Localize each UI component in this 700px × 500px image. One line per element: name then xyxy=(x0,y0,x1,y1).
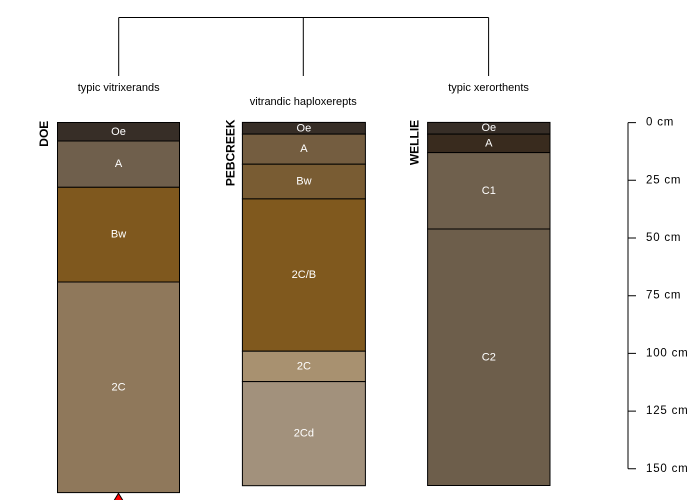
svg-text:2Cd: 2Cd xyxy=(294,428,314,440)
svg-text:WELLIE: WELLIE xyxy=(408,120,422,165)
svg-text:A: A xyxy=(300,143,308,155)
svg-text:Bw: Bw xyxy=(111,229,126,241)
svg-text:typic xerorthents: typic xerorthents xyxy=(448,82,529,94)
svg-text:vitrandic haploxerepts: vitrandic haploxerepts xyxy=(250,96,358,108)
svg-text:2C: 2C xyxy=(111,381,125,393)
svg-text:C1: C1 xyxy=(482,185,496,197)
svg-text:2C/B: 2C/B xyxy=(292,269,316,281)
svg-text:A: A xyxy=(485,137,493,149)
svg-text:C2: C2 xyxy=(482,351,496,363)
svg-text:150 cm: 150 cm xyxy=(646,463,689,475)
svg-text:typic vitrixerands: typic vitrixerands xyxy=(78,82,160,94)
svg-text:100 cm: 100 cm xyxy=(646,347,689,359)
svg-text:75 cm: 75 cm xyxy=(646,290,681,302)
svg-text:Oe: Oe xyxy=(297,122,312,134)
svg-text:25 cm: 25 cm xyxy=(646,174,681,186)
svg-text:0 cm: 0 cm xyxy=(646,117,674,129)
svg-text:Bw: Bw xyxy=(296,176,311,188)
svg-text:50 cm: 50 cm xyxy=(646,232,681,244)
svg-text:A: A xyxy=(115,158,123,170)
svg-text:Oe: Oe xyxy=(481,122,496,134)
svg-text:Oe: Oe xyxy=(111,126,126,138)
svg-text:2C: 2C xyxy=(297,360,311,372)
svg-text:125 cm: 125 cm xyxy=(646,405,689,417)
svg-text:PEBCREEK: PEBCREEK xyxy=(223,119,237,186)
svg-text:DOE: DOE xyxy=(37,121,51,147)
